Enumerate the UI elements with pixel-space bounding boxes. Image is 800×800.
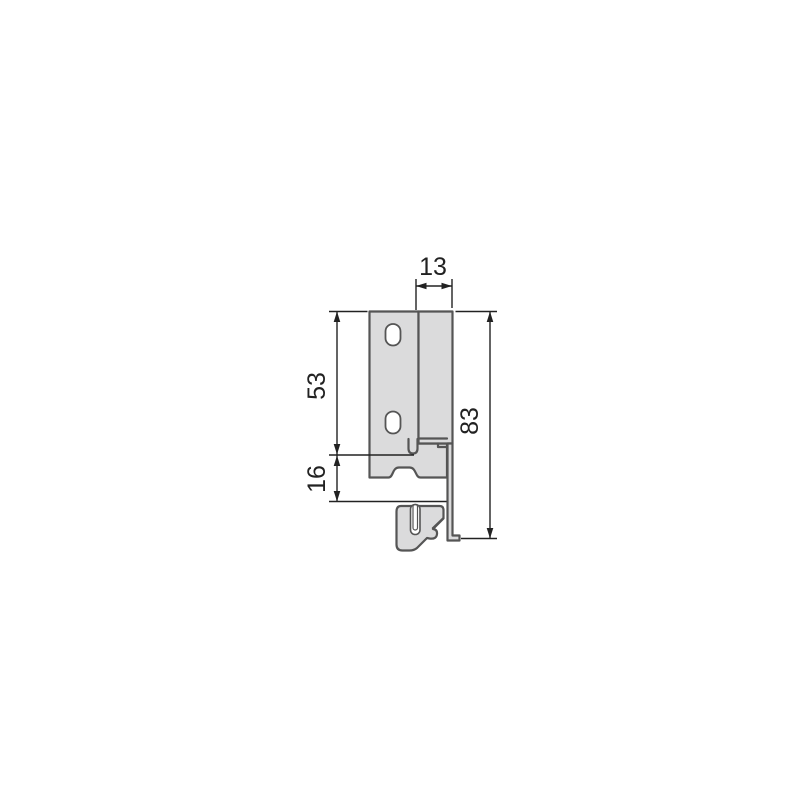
arrow-13-left bbox=[416, 283, 427, 290]
arrow-13-right bbox=[442, 283, 453, 290]
dim-label-lower-height: 16 bbox=[303, 465, 331, 493]
panel-slot-hole-bottom bbox=[386, 412, 401, 434]
drawing-canvas: 13 53 16 83 bbox=[0, 0, 800, 800]
arrow-83-top bbox=[487, 312, 494, 323]
rail-outer-wall-shape bbox=[448, 444, 460, 541]
arrow-16-top bbox=[334, 456, 341, 467]
arrow-53-bottom bbox=[334, 444, 341, 455]
dim-label-upper-height: 53 bbox=[303, 372, 331, 400]
technical-drawing: 13 53 16 83 bbox=[0, 0, 800, 800]
arrow-16-bottom bbox=[334, 491, 341, 502]
arrow-83-bottom bbox=[487, 528, 494, 539]
hook-shape bbox=[409, 439, 418, 454]
profile-outline-group bbox=[370, 312, 460, 551]
rail-body-shape bbox=[419, 312, 453, 444]
panel-slot-hole-top bbox=[386, 324, 401, 346]
dim-label-top-width: 13 bbox=[419, 253, 447, 281]
dim-label-total-height: 83 bbox=[456, 407, 484, 435]
arrow-53-top bbox=[334, 312, 341, 323]
